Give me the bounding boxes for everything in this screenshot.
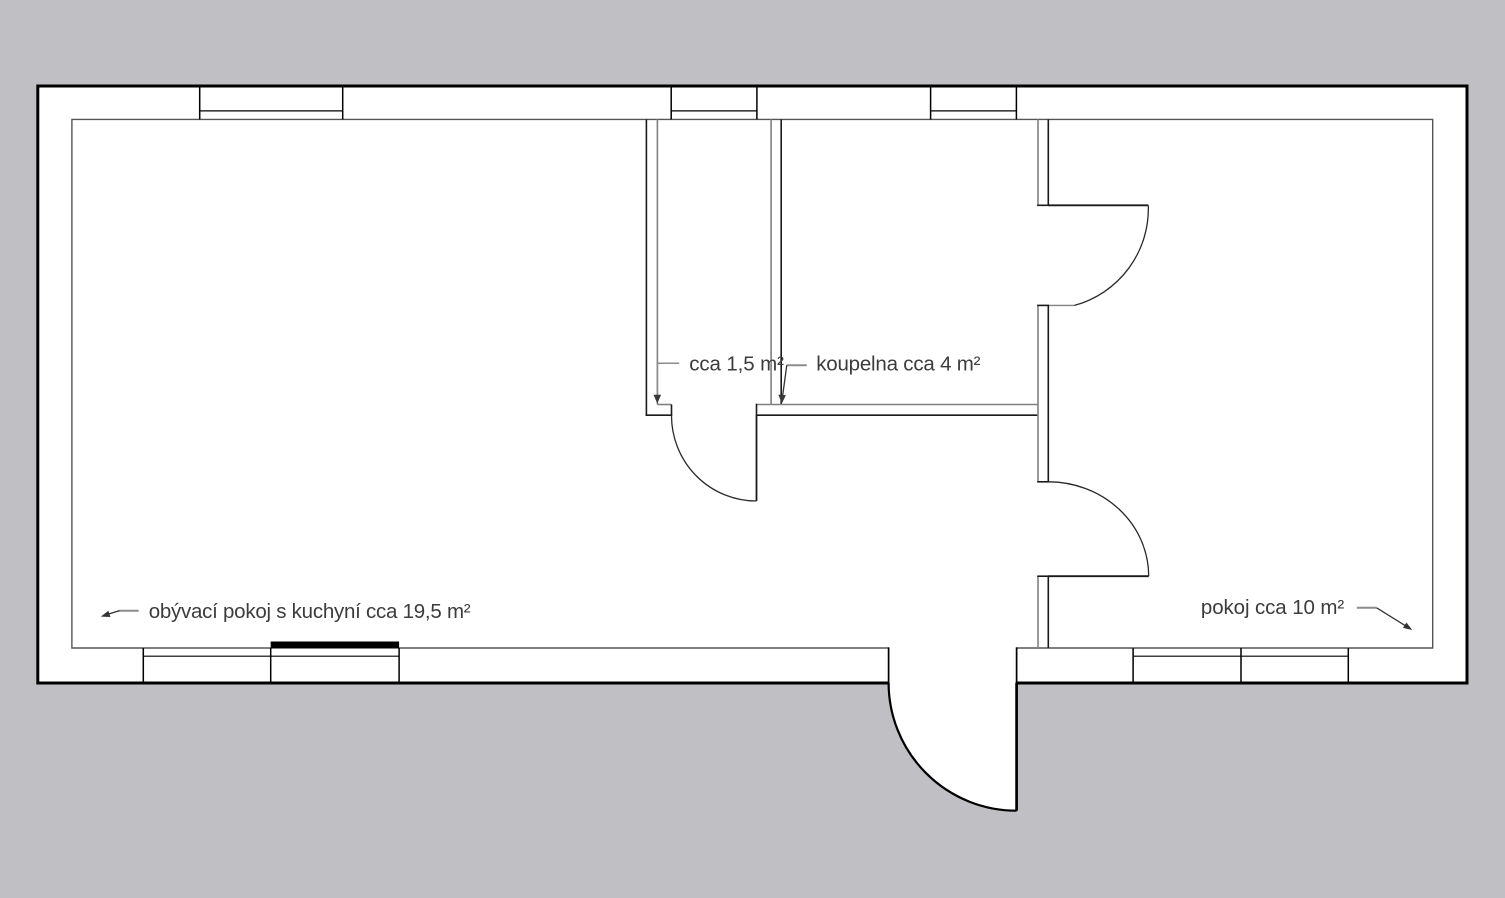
svg-text:koupelna cca 4 m²: koupelna cca 4 m² <box>816 353 980 376</box>
svg-text:cca 1,5 m²: cca 1,5 m² <box>689 352 784 375</box>
svg-text:pokoj cca 10 m²: pokoj cca 10 m² <box>1201 596 1344 619</box>
svg-text:obývací pokoj s kuchyní cca 19: obývací pokoj s kuchyní cca 19,5 m² <box>149 600 471 623</box>
